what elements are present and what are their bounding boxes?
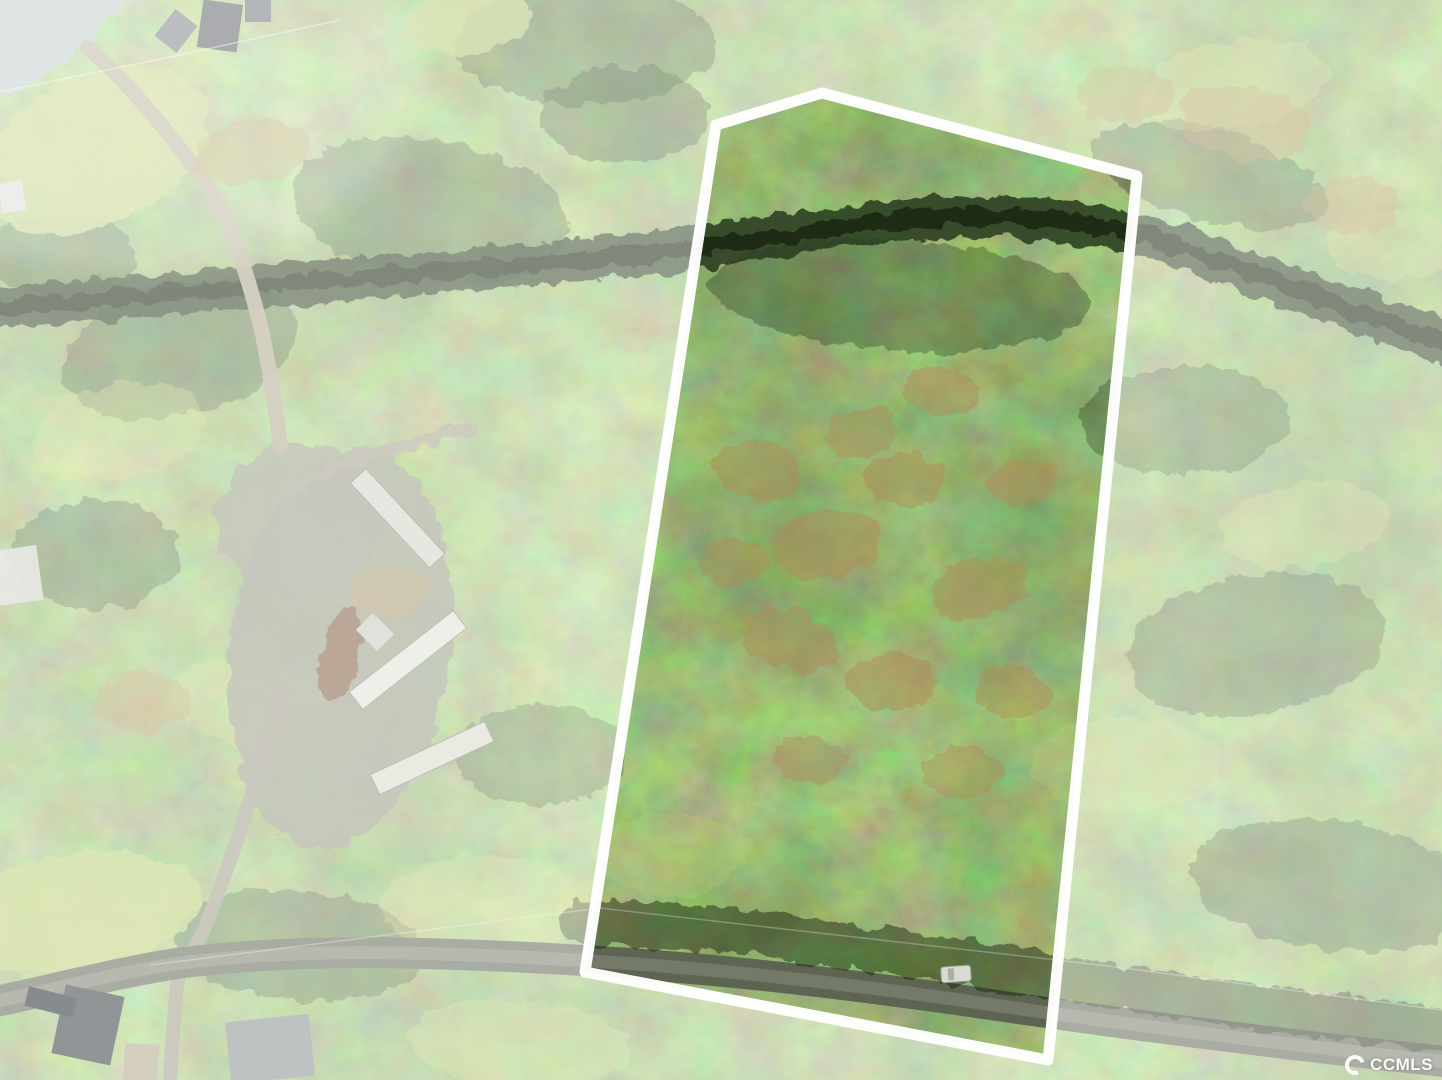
ccmls-watermark: CCMLS [1345, 1055, 1433, 1075]
aerial-photo-canvas [0, 0, 1442, 1080]
aerial-listing-photo: CCMLS [0, 0, 1442, 1080]
ccmls-logo-icon [1342, 1052, 1369, 1079]
ccmls-watermark-text: CCMLS [1370, 1055, 1433, 1075]
